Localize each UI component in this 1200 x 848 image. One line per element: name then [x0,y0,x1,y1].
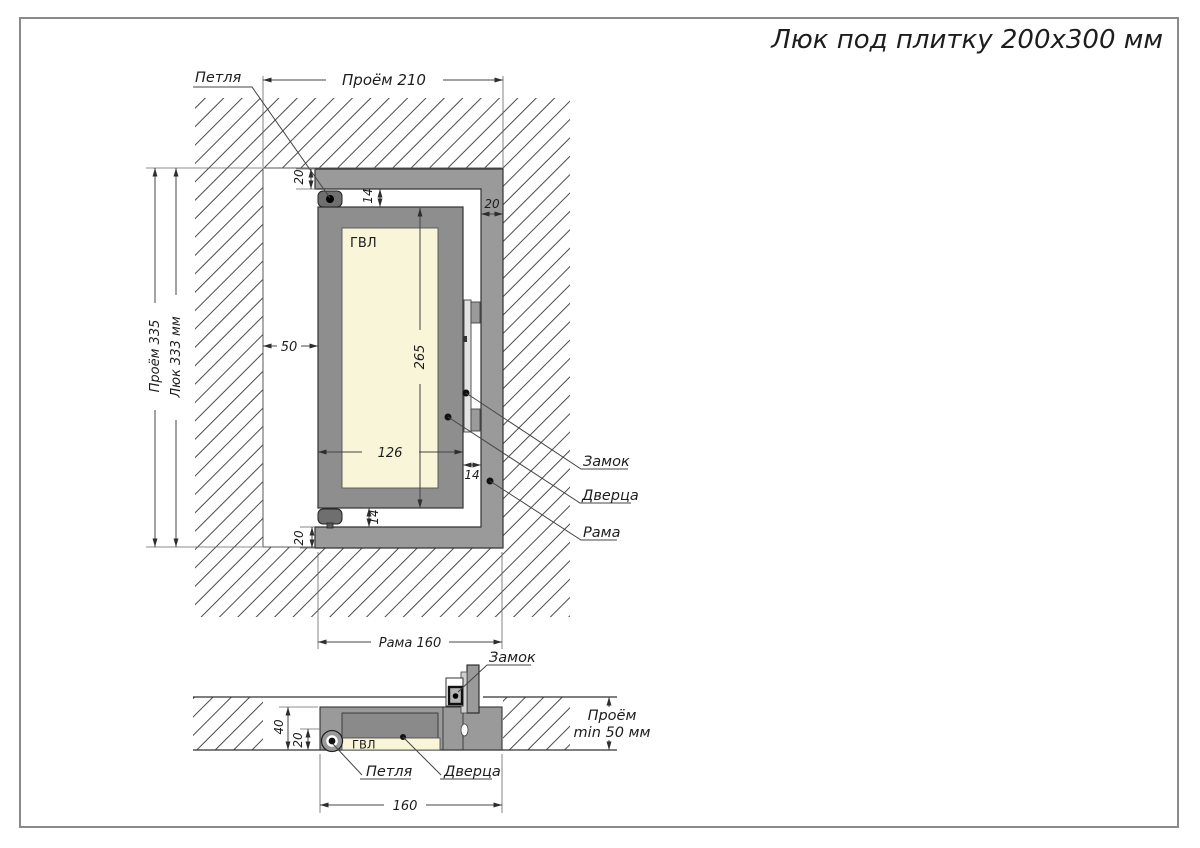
lock-label-plan: Замок [583,454,630,470]
dim-bottom-gap-text: 14 [367,509,381,524]
dim-right-gap-text: 14 [464,468,479,482]
dim-door-width-text: 126 [378,446,403,461]
hinge-top-pivot [326,195,334,203]
dim-depth-text: 40 [272,719,286,735]
lock-label-section: Замок [489,650,536,666]
dim-opening-depth-text-2: min 50 мм [574,725,651,741]
drawing-sheet: Люк под плитку 200х300 мм ГВЛ [0,0,1200,848]
technical-drawing: Люк под плитку 200х300 мм ГВЛ [0,0,1200,848]
frame-label-plan: Рама [583,525,620,541]
dim-top-profile-text: 20 [292,169,306,185]
hinge-label-plan: Петля [195,70,242,86]
dim-hinge-depth-text: 20 [291,732,305,748]
door-label-section: Дверца [443,764,501,780]
dim-bottom-profile-text: 20 [292,530,306,546]
wall-hatch-left-section [193,697,263,750]
hinge-bottom-plan [318,509,342,528]
hinge-top-plan [318,191,342,207]
dim-opening-depth-text-1: Проём [588,708,637,724]
dim-top-gap-text: 14 [361,188,375,203]
section-view: ГВЛ 40 20 [193,650,651,814]
door-label-plan: Дверца [581,488,639,504]
plan-view: ГВЛ Проём 210 Петля [146,70,639,651]
lock-section [446,665,479,713]
dim-hatch-height-text: Люк 333 мм [169,316,184,398]
dim-right-profile-text: 20 [484,197,500,211]
lock-plan [464,300,481,432]
hinge-section [322,731,343,752]
dim-opening-height-text: Проём 335 [148,320,163,393]
drawing-title: Люк под плитку 200х300 мм [770,25,1163,55]
dim-opening-width-text: Проём 210 [342,71,426,89]
hinge-label-section: Петля [366,764,413,780]
gvl-label-plan: ГВЛ [350,236,377,251]
wall-hatch-right-section [503,697,570,750]
dim-frame-width-section-text: 160 [393,799,418,814]
dim-left-offset-text: 50 [281,340,298,355]
screw-hole-section [461,724,468,736]
dim-frame-width-text: Рама 160 [379,636,442,651]
gvl-label-section: ГВЛ [352,738,376,752]
door-profile-section [342,713,438,738]
dim-door-height-text: 265 [413,345,428,370]
